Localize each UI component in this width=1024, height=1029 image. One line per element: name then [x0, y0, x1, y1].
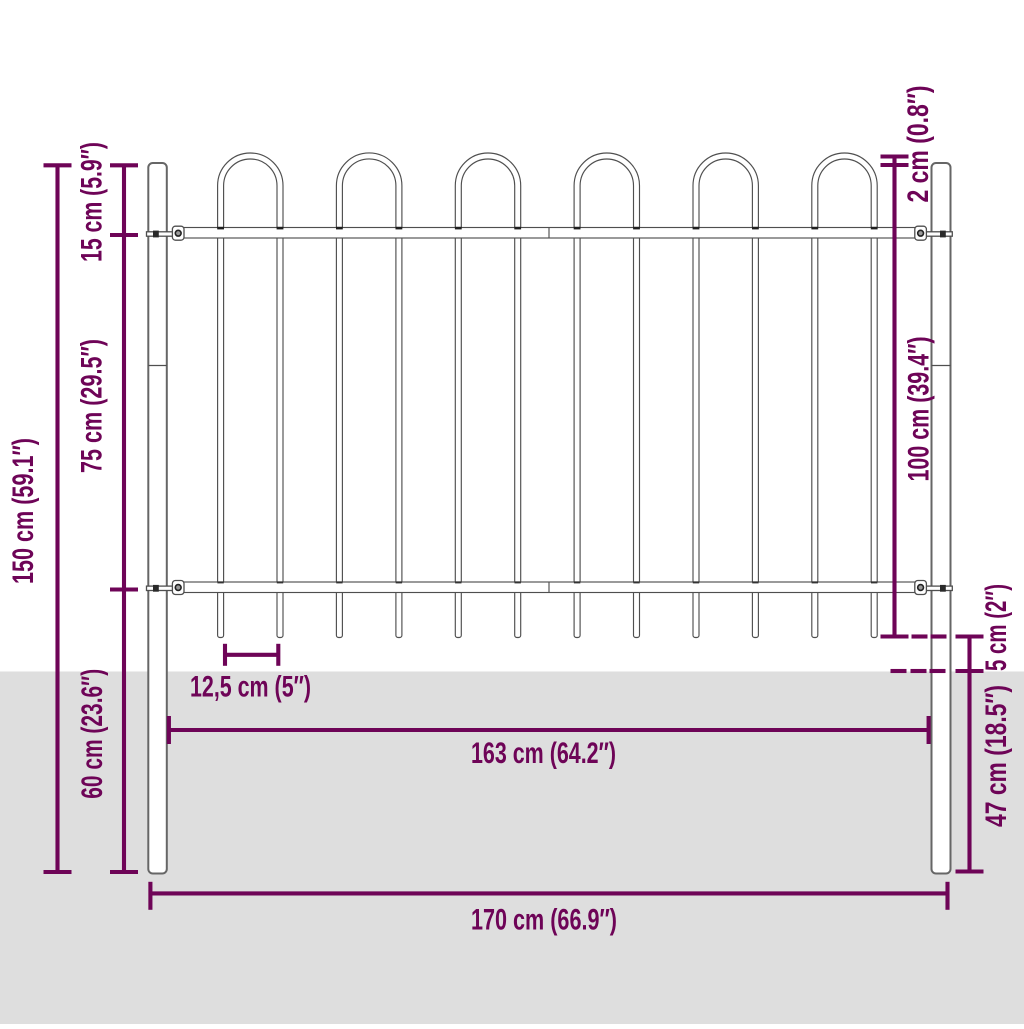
svg-text:5 cm (2″): 5 cm (2″)	[980, 584, 1013, 671]
svg-text:2 cm (0.8″): 2 cm (0.8″)	[902, 86, 935, 203]
svg-text:47 cm (18.5″): 47 cm (18.5″)	[980, 685, 1013, 827]
svg-text:15 cm (5.9″): 15 cm (5.9″)	[75, 142, 108, 262]
svg-text:100 cm (39.4″): 100 cm (39.4″)	[903, 337, 936, 482]
svg-text:75 cm (29.5″): 75 cm (29.5″)	[75, 339, 108, 473]
svg-text:12,5 cm (5″): 12,5 cm (5″)	[190, 671, 311, 704]
svg-text:170 cm (66.9″): 170 cm (66.9″)	[471, 904, 617, 937]
svg-text:150 cm (59.1″): 150 cm (59.1″)	[7, 438, 40, 584]
svg-text:163 cm (64.2″): 163 cm (64.2″)	[471, 737, 616, 770]
svg-text:60 cm (23.6″): 60 cm (23.6″)	[76, 669, 109, 799]
